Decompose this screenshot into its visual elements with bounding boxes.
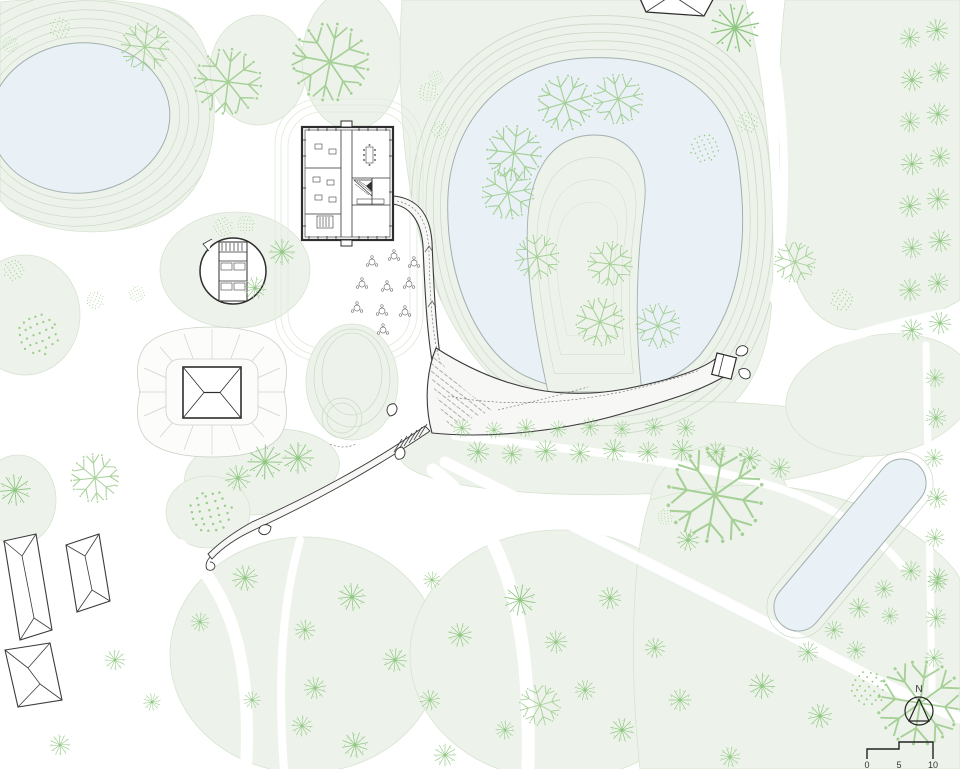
compass-label: N [915, 684, 922, 695]
scale-label-0: 0 [864, 760, 869, 769]
entry-porch-north [341, 121, 352, 127]
site-plan-canvas: N 0 5 10 [0, 0, 960, 769]
pond-central [448, 58, 743, 393]
site-plan-drawing: N 0 5 10 [0, 0, 960, 769]
circular-pavilion [200, 238, 266, 304]
pavilion-hip-roof [183, 367, 241, 418]
main-building [302, 121, 393, 246]
pavilion-garden-ring [137, 327, 286, 457]
entry-porch-south [341, 240, 352, 246]
scale-label-5: 5 [896, 760, 901, 769]
scale-label-10: 10 [928, 760, 938, 769]
